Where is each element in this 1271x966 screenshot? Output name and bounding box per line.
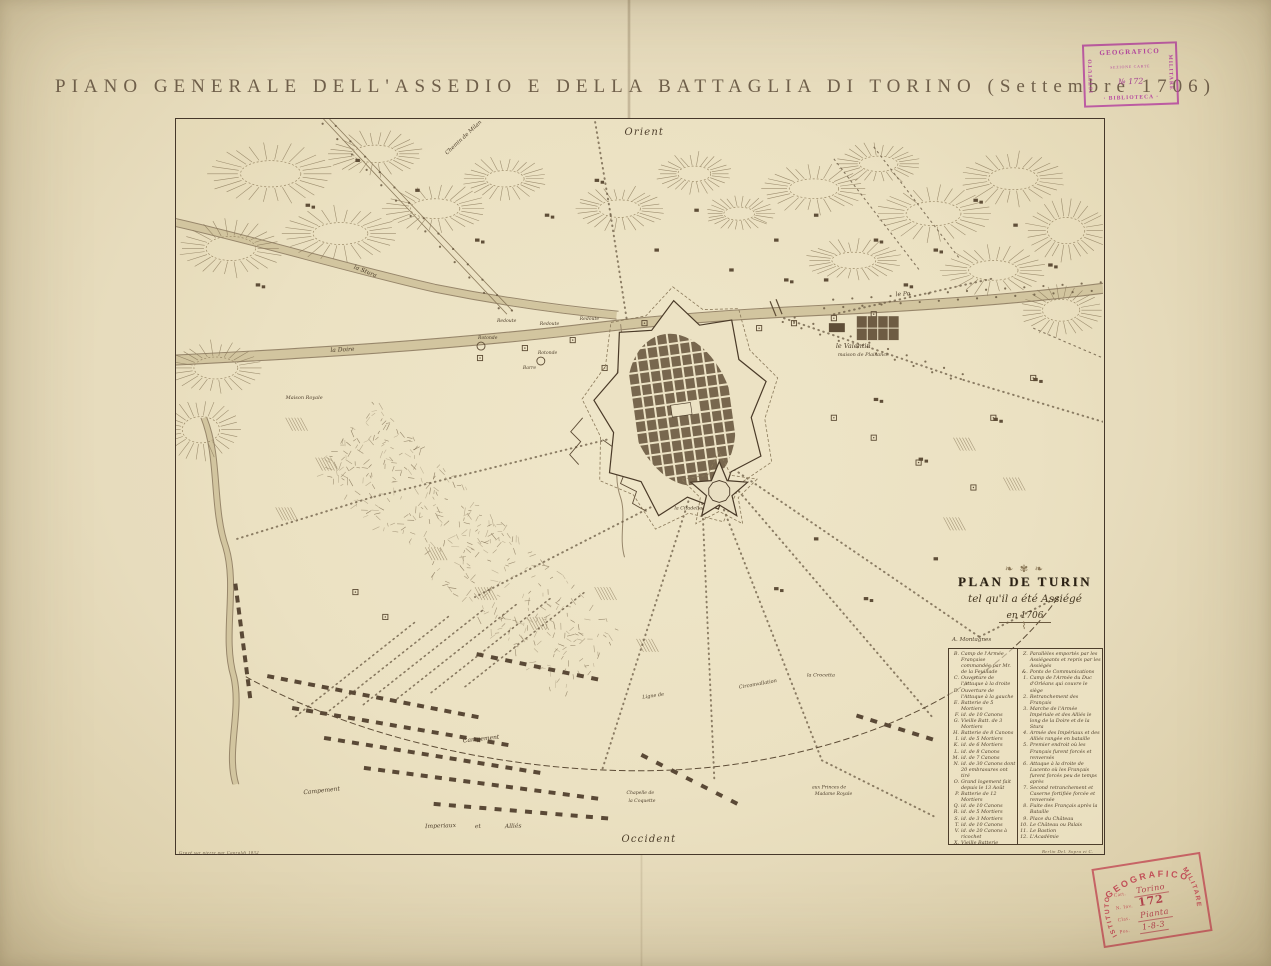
legend-entry: P.Batterie de 12 Mortiers <box>951 791 1016 803</box>
stamp-top-text: GEOGRAFICO <box>1099 47 1160 57</box>
cartouche-title: PLAN DE TURIN <box>942 574 1108 590</box>
map-label: la Coquette <box>629 798 656 804</box>
legend-entry: G.Vieille Batt. de 3 Mortiers <box>951 718 1016 730</box>
library-stamp: ISTITUTO GEOGRAFICO SEZIONE CARTE № 172 … <box>1082 41 1179 107</box>
cartouche-flourish-top: ❧ ✾ ❧ <box>942 566 1108 574</box>
map-label: Redoute <box>539 321 560 327</box>
map-label: Barre <box>522 365 536 371</box>
legend-entry: O.Grand logement fait depuis le 13 Août <box>951 779 1016 791</box>
legend-entry: B.Camp de l'Armée Française commandée pa… <box>951 651 1016 675</box>
map-label: Occident <box>622 834 677 845</box>
engraver-imprint: Gravé sur pierre par Capraldi 1832 <box>179 850 259 855</box>
cartouche: ❧ ✾ ❧ PLAN DE TURIN tel qu'il a été Assi… <box>942 566 1108 631</box>
map-label: le Valentin <box>836 342 871 350</box>
map-label: Circonvallation <box>738 678 777 691</box>
map-label: Maison Royale <box>285 395 323 401</box>
catalog-stamp: GEOGRAFICO ISTITUTO MILITARE Cart.Torino… <box>1091 852 1212 948</box>
map-label: Orient <box>625 127 665 138</box>
stamp-bottom-text: · BIBLIOTECA · <box>1103 94 1159 102</box>
map-label: Imperiaux <box>424 822 457 830</box>
legend-entry: 6.Attaque à la droite de Lucento où les … <box>1020 761 1101 785</box>
map-labels: OrientOccidentle Valentinmaison de Plais… <box>285 119 911 845</box>
map-label: la Citadelle <box>674 505 702 511</box>
map-label: Redoute <box>496 318 517 324</box>
map-label: le Po <box>895 290 911 298</box>
map-label: Rotonde <box>537 350 558 356</box>
map-label: la Doire <box>330 346 355 354</box>
legend-entry: E.Batterie de 5 Mortiers <box>951 700 1016 712</box>
map-label: la Stura <box>353 264 378 280</box>
map-label: aux Princes de <box>812 784 846 790</box>
map-label: Redoute <box>579 316 600 322</box>
publisher-imprint: Berlin Del. Sopra et C. <box>1042 849 1094 854</box>
legend-table: B.Camp de l'Armée Française commandée pa… <box>948 648 1103 845</box>
cartouche-flourish-bottom: ⌇ <box>942 623 1108 631</box>
map-label: maison de Plaisance <box>838 352 889 358</box>
map-label: la Crocetta <box>807 673 835 679</box>
stamp-row2-text: SEZIONE CARTE <box>1110 64 1150 69</box>
map-label: et <box>475 823 482 830</box>
map-label: Ligne de <box>641 692 665 701</box>
legend-entry: 2.Retranchement des Français <box>1020 694 1101 706</box>
legend-entry: 8.Fuite des Français après la Bataille <box>1020 803 1101 815</box>
map-label: Campement <box>463 734 501 745</box>
map-label: Alliés <box>504 823 522 831</box>
paper-fold-crease-bottom <box>640 842 643 966</box>
map-label: Rotonde <box>477 335 498 341</box>
legend-letter-column: B.Camp de l'Armée Française commandée pa… <box>949 649 1018 844</box>
legend-number-column: Z.Parallèles emportés par les Assiégeant… <box>1018 649 1102 844</box>
legend-entry: 5.Premier endroit où les Français furent… <box>1020 742 1101 760</box>
legend-entry: X.Vieille Batterie <box>951 840 1016 844</box>
cartouche-subtitle: tel qu'il a été Assiégé <box>942 593 1108 605</box>
stamp-inventory-number: № 172 <box>1118 77 1144 87</box>
legend-entry: C.Ouverture de l'Attaque à la droite <box>951 675 1016 687</box>
legend-entry: 4.Armée des Impériaux et des Alliés rang… <box>1020 730 1101 742</box>
map-label: Chapelle de <box>627 790 655 796</box>
stamp-right-text: MILITARE <box>1164 43 1177 102</box>
map-label: Chemin de Milan <box>444 119 483 156</box>
paper-fold-crease <box>627 0 631 118</box>
scanned-map-sheet: PIANO GENERALE DELL'ASSEDIO E DELLA BATT… <box>0 0 1271 966</box>
legend-entry: 12.L'Académie <box>1020 834 1101 840</box>
legend-entry: D.Ouverture de l'Attaque à la gauche <box>951 688 1016 700</box>
legend-entry: Z.Parallèles emportés par les Assiégeant… <box>1020 651 1101 669</box>
legend-entry: 7.Second retranchement et Caserne fortif… <box>1020 785 1101 803</box>
legend-first-entry: A. Montagnes <box>952 637 991 643</box>
page-title: PIANO GENERALE DELL'ASSEDIO E DELLA BATT… <box>0 76 1271 98</box>
legend-entry: 3.Marche de l'Armée Impériale et des All… <box>1020 706 1101 730</box>
map-label: Madame Royale <box>814 791 853 797</box>
legend-entry: V.id. de 20 Canons à ricochet <box>951 828 1016 840</box>
legend-entry: 1.Camp de l'Armée du Duc d'Orléans qui c… <box>1020 675 1101 693</box>
map-label: Campement <box>303 785 341 796</box>
legend-entry: N.id. de 30 Canons dont 20 embrasures on… <box>951 761 1016 779</box>
